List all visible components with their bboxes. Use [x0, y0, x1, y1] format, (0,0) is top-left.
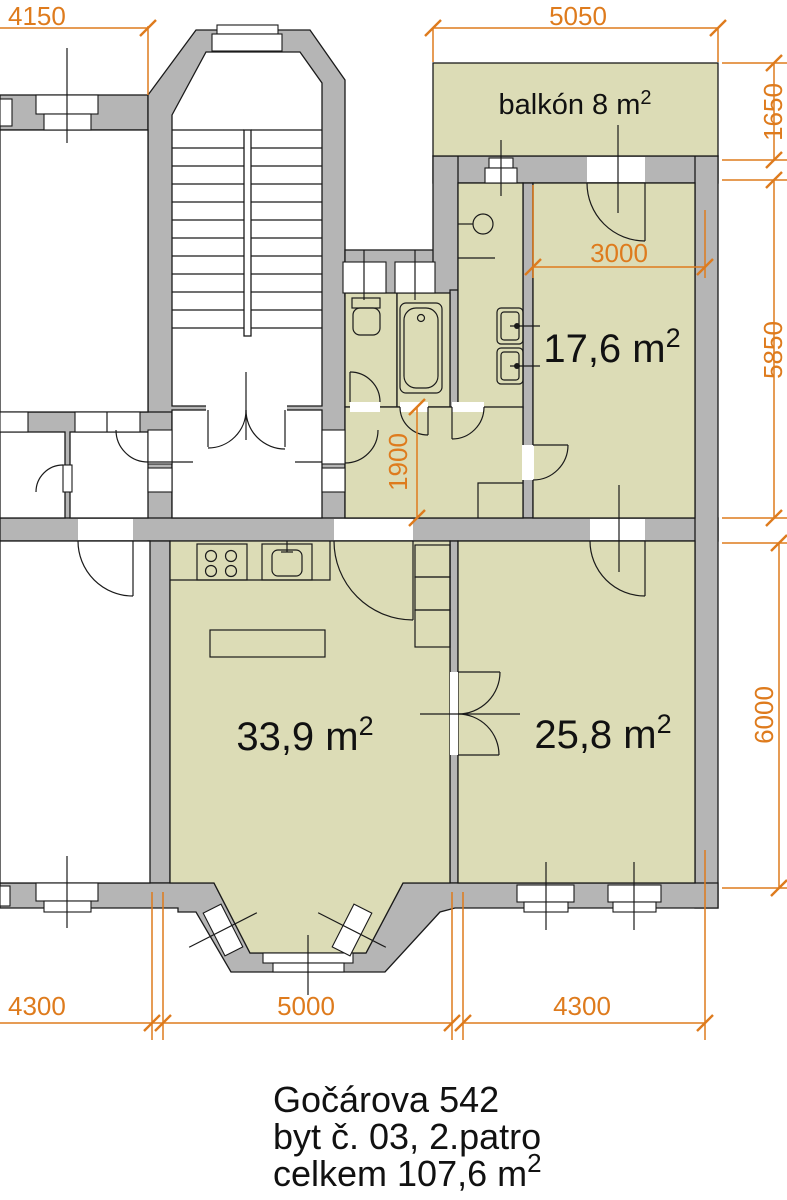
- neighbor-room-top: [0, 130, 148, 412]
- hallway: [345, 407, 523, 518]
- dim-4150-label: 4150: [8, 1, 66, 31]
- neighbor-room-a: [0, 432, 65, 518]
- floor-plan-page: 4150 5050 1650 5850: [0, 0, 787, 1200]
- title-line-1: Gočárova 542: [273, 1079, 499, 1120]
- dim-1900-label: 1900: [383, 433, 413, 491]
- dimension-top: 5050: [425, 1, 726, 62]
- dim-6000-label: 6000: [749, 686, 779, 744]
- dim-4300-right-label: 4300: [553, 991, 611, 1021]
- dim-5850-label: 5850: [758, 321, 787, 379]
- room-17-6-label: 17,6 m2: [543, 323, 680, 371]
- dimension-lower-height: 6000: [722, 535, 787, 896]
- dim-3000-label: 3000: [590, 238, 648, 268]
- wc-room: [345, 293, 397, 407]
- dim-1650-label: 1650: [758, 83, 787, 141]
- dimension-top-left: 4150: [0, 1, 156, 95]
- dim-5000-label: 5000: [277, 991, 335, 1021]
- window-left-edge-top: [0, 99, 12, 126]
- dimension-balcony-depth: 1650: [722, 55, 787, 168]
- window-stairwell-top: [212, 25, 282, 51]
- window-top-left: [36, 48, 98, 143]
- room-33-9-label: 33,9 m2: [236, 711, 373, 759]
- title-line-3: celkem 107,6 m2: [273, 1148, 542, 1194]
- neighbor-room-b: [70, 432, 148, 518]
- dimension-upper-height: 5850: [722, 172, 787, 526]
- dim-4300-left-label: 4300: [8, 991, 66, 1021]
- balcony-label: balkón 8 m2: [499, 87, 652, 121]
- stair-divider: [244, 130, 251, 336]
- neighbor-room-bottom: [0, 541, 150, 883]
- dimension-bottom-left: 4300: [0, 892, 171, 1040]
- floor-plan-drawing: 4150 5050 1650 5850: [0, 0, 787, 1200]
- stair-landing: [172, 410, 322, 518]
- title-line-2: byt č. 03, 2.patro: [273, 1116, 541, 1157]
- title-block: Gočárova 542 byt č. 03, 2.patro celkem 1…: [273, 1079, 542, 1194]
- dim-5050-label: 5050: [549, 1, 607, 31]
- room-25-8-label: 25,8 m2: [534, 709, 671, 757]
